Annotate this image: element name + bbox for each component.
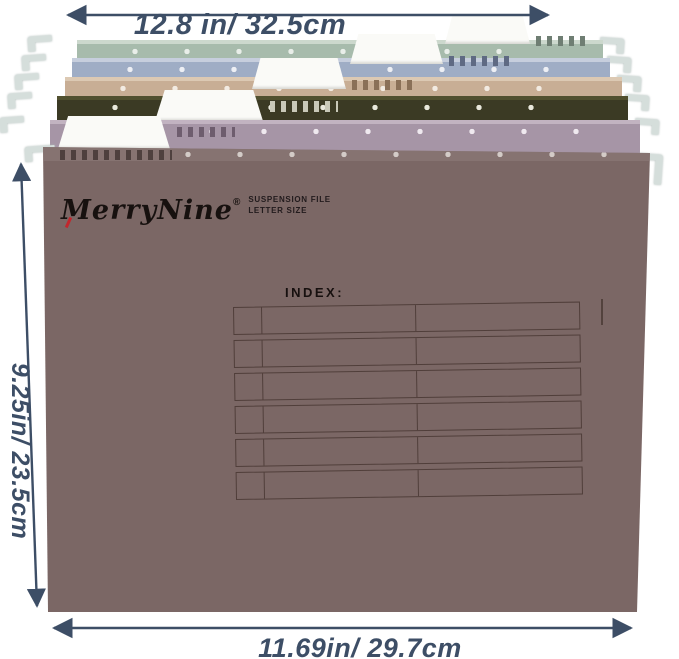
- hanging-rail-hook: [8, 92, 33, 109]
- logo-subtitle-line2: LETTER SIZE: [248, 206, 307, 215]
- hanging-rail-hook: [0, 116, 24, 133]
- index-table-cell: [418, 435, 581, 464]
- brand-name: MerryNine: [61, 195, 233, 226]
- tab-slot-row: [352, 80, 414, 90]
- registered-trademark-icon: ®: [233, 197, 240, 208]
- index-table-cell: [236, 440, 264, 466]
- index-table-cell: [264, 404, 418, 432]
- white-index-tab: [445, 14, 530, 44]
- dimension-label-left-height: 9.25in/ 23.5cm: [4, 336, 34, 566]
- index-table-row: [234, 368, 581, 401]
- logo-subtitle: SUSPENSION FILE LETTER SIZE: [248, 195, 331, 217]
- index-table-cell: [263, 338, 417, 366]
- tab-slot-row: [536, 36, 586, 46]
- index-table-cell: [262, 305, 416, 333]
- hanging-rail-hook: [28, 35, 53, 52]
- index-table-cell: [419, 468, 582, 497]
- product-dimension-image: 12.8 in/ 32.5cm 9.25in/ 23.5cm 11.69in/ …: [0, 0, 679, 659]
- hanging-rail-hook: [625, 94, 650, 111]
- tab-slot-row: [449, 56, 509, 66]
- hanging-rail-hook: [600, 37, 625, 54]
- index-table-cell: [418, 402, 581, 431]
- folder-mauve-front: MerryNine®SUSPENSION FILE LETTER SIZE IN…: [35, 143, 655, 615]
- rivet-dots: [132, 48, 543, 55]
- index-table-cell: [417, 336, 580, 365]
- hanging-rail-hook: [15, 73, 40, 90]
- index-table: [233, 302, 583, 505]
- index-table-cell: [264, 437, 418, 465]
- index-table-row: [235, 401, 582, 434]
- stray-tick-mark: [601, 299, 603, 325]
- tab-slot-row: [177, 127, 235, 137]
- hanging-rail-hook: [607, 56, 632, 73]
- index-label: INDEX:: [285, 285, 344, 300]
- index-table-cell: [417, 369, 580, 398]
- tab-slot-row: [60, 150, 172, 160]
- dimension-label-top-width: 12.8 in/ 32.5cm: [80, 9, 400, 42]
- brand-logo: MerryNine®SUSPENSION FILE LETTER SIZE: [61, 195, 331, 226]
- white-index-tab: [58, 116, 170, 149]
- dimension-label-bottom-width: 11.69in/ 29.7cm: [205, 633, 515, 659]
- index-table-row: [235, 434, 582, 467]
- index-table-cell: [416, 303, 579, 332]
- index-table-row: [233, 302, 580, 335]
- index-table-cell: [236, 407, 264, 433]
- white-index-tab: [155, 90, 263, 121]
- logo-subtitle-line1: SUSPENSION FILE: [248, 195, 331, 204]
- tab-slot-row: [270, 101, 338, 112]
- hanging-rail-hook: [22, 54, 47, 71]
- index-table-cell: [235, 374, 263, 400]
- index-table-cell: [263, 371, 417, 399]
- index-table-cell: [265, 470, 419, 498]
- index-table-row: [236, 467, 583, 500]
- white-index-tab: [252, 58, 346, 89]
- index-table-cell: [235, 341, 263, 367]
- index-table-cell: [237, 473, 265, 499]
- index-table-cell: [234, 308, 262, 334]
- index-table-row: [234, 335, 581, 368]
